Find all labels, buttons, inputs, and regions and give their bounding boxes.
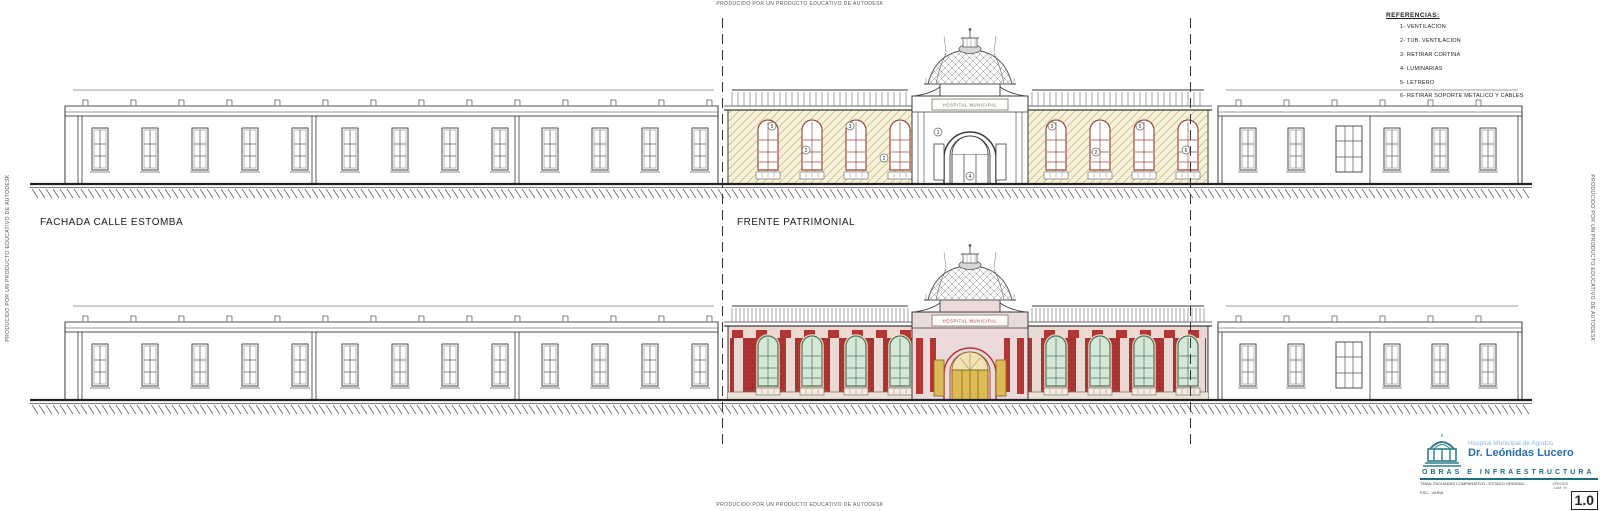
sheet-number-label: LAM. N°:: [1554, 486, 1568, 490]
legend-references: REFERENCIAS: 1- VENTILACION2- TUB. VENTI…: [1386, 12, 1526, 107]
svg-text:3: 3: [849, 124, 852, 130]
svg-text:HOSPITAL MUNICIPAL: HOSPITAL MUNICIPAL: [943, 103, 998, 108]
version-area: VERSION LAM. N°: 1.0: [1540, 482, 1598, 510]
drawing-scale: ESC.: VARIA: [1420, 490, 1540, 495]
legend-item: 4- LUMINARIAS: [1400, 66, 1526, 73]
label-frente-patrimonial: FRENTE PATRIMONIAL: [737, 217, 855, 228]
title-block: Hospital Municipal de Agudos Dr. Leónida…: [1420, 433, 1598, 511]
legend-item: 1- VENTILACION: [1400, 24, 1526, 31]
svg-text:5: 5: [1139, 124, 1142, 130]
svg-text:3: 3: [1051, 124, 1054, 130]
svg-text:6: 6: [1185, 148, 1188, 154]
svg-text:5: 5: [771, 124, 774, 130]
legend-item: 6- RETIRAR SOPORTE METALICO Y CABLES: [1400, 93, 1526, 100]
hospital-name-line2: Dr. Leónidas Lucero: [1468, 447, 1574, 460]
legend-item-list: 1- VENTILACION2- TUB. VENTILACION3- RETI…: [1386, 24, 1526, 100]
svg-text:HOSPITAL MUNICIPAL: HOSPITAL MUNICIPAL: [943, 319, 998, 324]
autodesk-watermark-bottom: PRODUCIDO POR UN PRODUCTO EDUCATIVO DE A…: [716, 502, 883, 508]
legend-item: 3- RETIRAR CORTINA: [1400, 52, 1526, 59]
label-fachada-calle-estomba: FACHADA CALLE ESTOMBA: [40, 217, 183, 228]
hospital-name: Hospital Municipal de Agudos Dr. Leónida…: [1468, 440, 1574, 460]
title-block-header: Hospital Municipal de Agudos Dr. Leónida…: [1420, 433, 1598, 467]
svg-text:2: 2: [883, 156, 886, 162]
svg-text:2: 2: [1095, 150, 1098, 156]
legend-item: 5- LETRERO: [1400, 80, 1526, 87]
svg-text:1: 1: [937, 130, 940, 136]
legend-item: 2- TUB. VENTILACION: [1400, 38, 1526, 45]
drawing-sheet: PRODUCIDO POR UN PRODUCTO EDUCATIVO DE A…: [0, 0, 1600, 511]
elevation-restored-state: HOSPITAL MUNICIPAL: [0, 242, 1600, 457]
autodesk-watermark-top: PRODUCIDO POR UN PRODUCTO EDUCATIVO DE A…: [716, 1, 883, 7]
legend-title: REFERENCIAS:: [1386, 12, 1526, 19]
department-name: OBRAS E INFRAESTRUCTURA: [1420, 468, 1598, 480]
section-cut-line-left: [722, 18, 723, 450]
subject-and-scale: TEMA: FACHADAS COMPARATIVO - ESTADO ORIG…: [1420, 482, 1540, 510]
title-block-fields: TEMA: FACHADAS COMPARATIVO - ESTADO ORIG…: [1420, 480, 1598, 511]
elevation-existing-state: HOSPITAL MUNICIPAL5232143256: [0, 26, 1600, 241]
hospital-logo-icon: [1420, 433, 1464, 467]
svg-text:2: 2: [805, 148, 808, 154]
section-cut-line-right: [1190, 18, 1191, 450]
svg-text:4: 4: [969, 174, 972, 180]
sheet-version-number: 1.0: [1571, 491, 1598, 510]
drawing-subject: TEMA: FACHADAS COMPARATIVO - ESTADO ORIG…: [1420, 482, 1540, 487]
hospital-name-line1: Hospital Municipal de Agudos: [1468, 440, 1574, 447]
